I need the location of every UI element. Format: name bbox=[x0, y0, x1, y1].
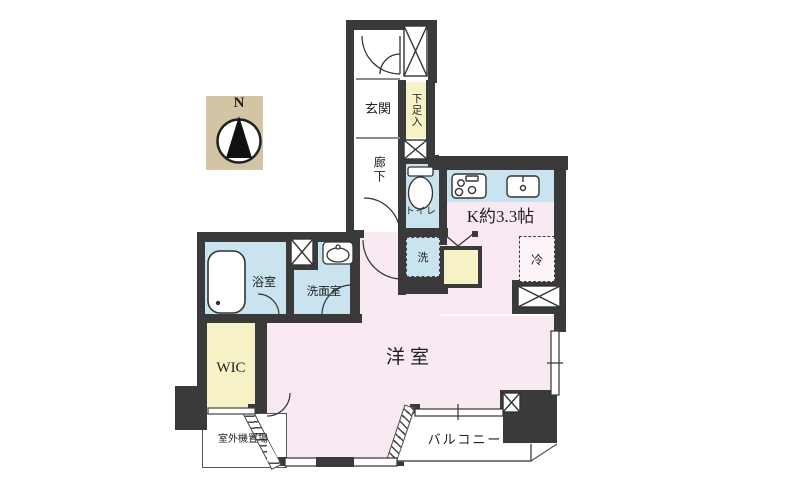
window-right-wall bbox=[547, 331, 563, 395]
genkan-label: 玄関 bbox=[356, 100, 400, 118]
outdoor-unit-label: 室外機置場 bbox=[202, 434, 284, 447]
counter-storage-box bbox=[440, 246, 482, 288]
kitchen-label: K約3.3帖 bbox=[445, 206, 556, 228]
shaft-entrance-icon bbox=[404, 26, 427, 76]
washer-box: 洗 bbox=[406, 237, 440, 277]
stove-icon bbox=[452, 174, 486, 198]
fridge-label: 冷 bbox=[531, 251, 543, 268]
washer-label: 洗 bbox=[418, 249, 429, 265]
fridge-box: 冷 bbox=[519, 236, 555, 282]
shaft-shoe-icon bbox=[404, 140, 427, 159]
counter-door-icon bbox=[439, 231, 478, 246]
wic-label: WIC bbox=[207, 359, 255, 379]
window-bottom bbox=[285, 457, 397, 467]
mainroom-door-icon bbox=[363, 240, 402, 279]
balcony-label: バルコニー bbox=[415, 431, 515, 448]
bathroom-label: 浴室 bbox=[242, 275, 286, 290]
compass-n-label: N bbox=[230, 95, 248, 113]
floor-plan: 洗 冷 N 玄関 下足入 廊下 トイレ K約3.3帖 浴室 洗面室 WIC 洋室… bbox=[0, 0, 800, 500]
corridor-label: 廊下 bbox=[366, 144, 392, 196]
plan-symbols bbox=[0, 0, 800, 500]
bathtub-icon bbox=[208, 251, 245, 313]
toilet-icon bbox=[408, 167, 433, 209]
shoe-cabinet-label: 下足入 bbox=[403, 84, 429, 136]
washbasin-icon bbox=[323, 242, 353, 264]
outside-cut-right bbox=[531, 443, 561, 467]
toilet-label: トイレ bbox=[403, 207, 439, 219]
kitchen-sink-icon bbox=[507, 176, 539, 197]
compass-icon bbox=[218, 116, 261, 163]
shaft-bath-icon bbox=[291, 239, 313, 265]
window-wic-bottom bbox=[208, 408, 255, 414]
shaft-pillar-icon bbox=[503, 393, 520, 412]
washroom-label: 洗面室 bbox=[299, 285, 349, 300]
entrance-door-icon bbox=[362, 36, 400, 74]
main-room-label: 洋室 bbox=[358, 346, 462, 370]
corridor-door-icon bbox=[364, 198, 400, 234]
wic-door-icon bbox=[267, 393, 290, 416]
bathroom-door-icon bbox=[258, 294, 279, 315]
shaft-kitchen-icon bbox=[518, 286, 560, 307]
